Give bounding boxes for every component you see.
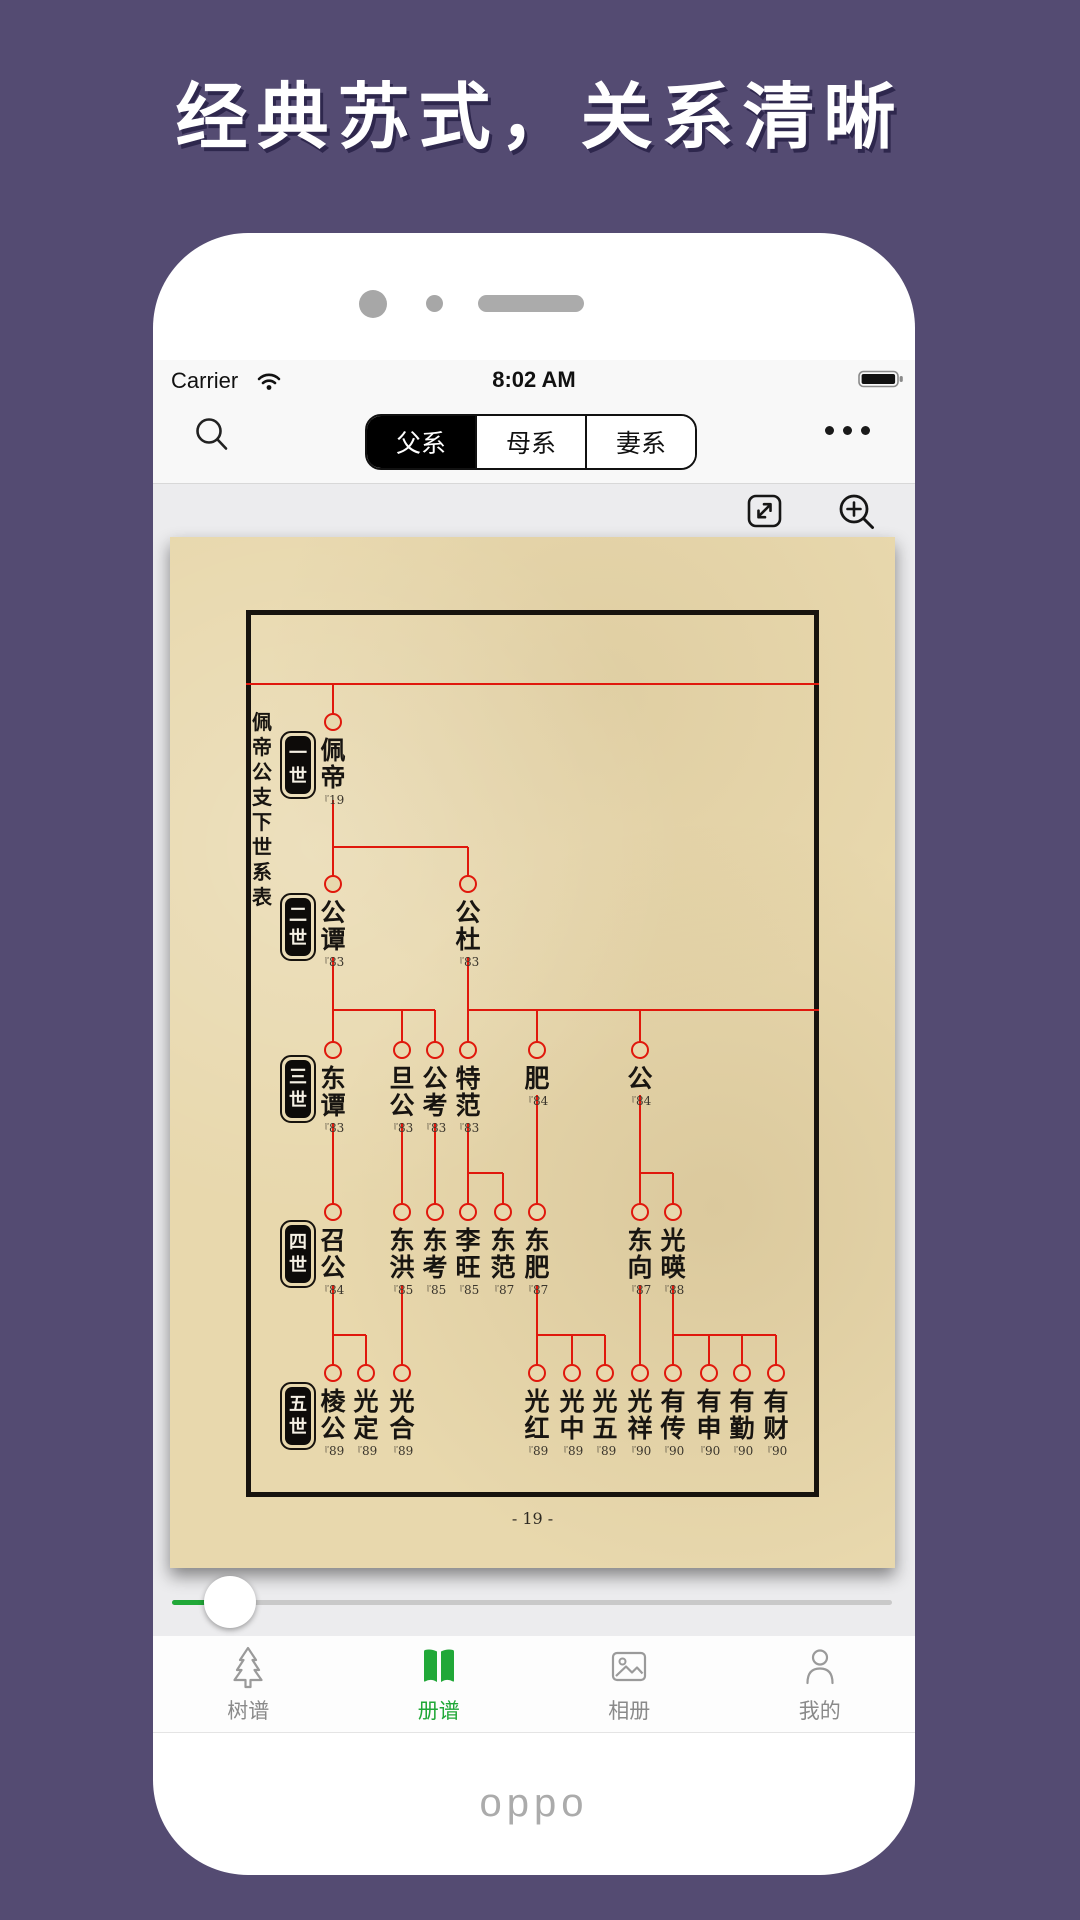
person-name: 肥: [523, 1065, 551, 1092]
segment-父系[interactable]: 父系: [367, 416, 475, 468]
tab-相册[interactable]: 相册: [534, 1636, 725, 1732]
page-ref: 『83: [389, 1121, 413, 1135]
battery-icon: [858, 369, 904, 389]
person-node-circle: [631, 1364, 649, 1382]
person-node-circle: [733, 1364, 751, 1382]
person-node-circle: [393, 1203, 411, 1221]
person-name: 公: [626, 1065, 654, 1092]
sensor-dot: [426, 295, 443, 312]
person-name: 东洪: [388, 1227, 416, 1281]
person-node-circle: [664, 1364, 682, 1382]
tree-connector-v: [467, 1123, 469, 1212]
page-ref: 『85: [389, 1283, 413, 1297]
page-ref: 『89: [389, 1444, 413, 1458]
page-ref: 『19: [320, 793, 344, 807]
genealogy-page[interactable]: 佩帝『19公谭『83公杜『83东谭『83旦公『83公考『83特范『83肥『84公…: [170, 537, 895, 1568]
hero-title: 经典苏式，关系清晰: [0, 58, 1080, 163]
person-node-circle: [324, 1041, 342, 1059]
page-ref: 『89: [320, 1444, 344, 1458]
person-node-circle: [631, 1041, 649, 1059]
page-ref: 『89: [592, 1444, 616, 1458]
page-ref: 『89: [353, 1444, 377, 1458]
person-name: 有申: [695, 1388, 723, 1442]
person-name: 光定: [352, 1388, 380, 1442]
person-name: 佩帝: [319, 737, 347, 791]
search-icon[interactable]: [193, 416, 231, 454]
tree-connector-v: [332, 1123, 334, 1212]
person-node-circle: [459, 875, 477, 893]
tree-connector-v: [467, 957, 469, 1050]
tree-connector-v: [332, 1285, 334, 1373]
person-name: 东谭: [319, 1065, 347, 1119]
tab-树谱[interactable]: 树谱: [153, 1636, 344, 1732]
tab-我的[interactable]: 我的: [725, 1636, 916, 1732]
album-icon: [606, 1643, 652, 1691]
tab-bar: 树谱册谱相册我的: [153, 1636, 915, 1733]
speaker-bar: [478, 295, 584, 312]
tree-connector-h: [468, 1172, 503, 1174]
person-name: 光红: [523, 1388, 551, 1442]
page-ref: 『83: [455, 955, 479, 969]
person-name: 旦公: [388, 1065, 416, 1119]
page-slider-track[interactable]: [172, 1600, 892, 1605]
person-name: 公谭: [319, 899, 347, 953]
person-node-circle: [324, 1203, 342, 1221]
person-name: 光祥: [626, 1388, 654, 1442]
page-viewer: 佩帝『19公谭『83公杜『83东谭『83旦公『83公考『83特范『83肥『84公…: [153, 484, 915, 1636]
person-node-circle: [631, 1203, 649, 1221]
tree-connector-v: [434, 1123, 436, 1212]
person-node-circle: [324, 713, 342, 731]
person-node-circle: [664, 1203, 682, 1221]
page-ref: 『87: [627, 1283, 651, 1297]
person-name: 公考: [421, 1065, 449, 1119]
person-name: 光暎: [659, 1227, 687, 1281]
generation-badge: 一世: [280, 731, 316, 799]
generation-badge: 五世: [280, 1382, 316, 1450]
user-icon: [797, 1643, 843, 1691]
brand-logo: oppo: [153, 1781, 915, 1826]
page-ref: 『85: [455, 1283, 479, 1297]
page-ref: 『89: [559, 1444, 583, 1458]
segment-妻系[interactable]: 妻系: [585, 416, 695, 468]
page-ref: 『83: [320, 1121, 344, 1135]
person-node-circle: [393, 1041, 411, 1059]
person-node-circle: [324, 875, 342, 893]
page-ref: 『85: [422, 1283, 446, 1297]
tree-connector-h: [333, 1009, 435, 1011]
person-node-circle: [494, 1203, 512, 1221]
page-ref: 『84: [627, 1094, 651, 1108]
tree-side-title: 佩帝公支下世系表: [252, 710, 272, 910]
page-ref: 『83: [320, 955, 344, 969]
person-node-circle: [393, 1364, 411, 1382]
person-node-circle: [459, 1203, 477, 1221]
family-tree: 佩帝『19公谭『83公杜『83东谭『83旦公『83公考『83特范『83肥『84公…: [170, 537, 895, 1568]
person-node-circle: [700, 1364, 718, 1382]
tree-connector-v: [536, 1285, 538, 1373]
tree-connector-h: [468, 1009, 819, 1011]
camera-dot: [359, 290, 387, 318]
person-node-circle: [528, 1364, 546, 1382]
nav-bar: 父系母系妻系: [153, 400, 915, 484]
person-name: 东肥: [523, 1227, 551, 1281]
more-icon[interactable]: [825, 426, 881, 435]
tree-connector-v: [332, 800, 334, 884]
person-name: 公杜: [454, 899, 482, 953]
page-ref: 『83: [455, 1121, 479, 1135]
person-node-circle: [563, 1364, 581, 1382]
tree-connector-h: [673, 1334, 776, 1336]
page-ref: 『90: [763, 1444, 787, 1458]
page-ref: 『89: [524, 1444, 548, 1458]
person-name: 有财: [762, 1388, 790, 1442]
person-name: 有传: [659, 1388, 687, 1442]
person-node-circle: [324, 1364, 342, 1382]
zoom-in-icon[interactable]: [836, 492, 880, 532]
person-name: 召公: [319, 1227, 347, 1281]
person-node-circle: [426, 1041, 444, 1059]
person-name: 光中: [558, 1388, 586, 1442]
page-ref: 『87: [524, 1283, 548, 1297]
person-node-circle: [528, 1041, 546, 1059]
book-icon: [416, 1643, 462, 1691]
page-ref: 『90: [660, 1444, 684, 1458]
person-node-circle: [528, 1203, 546, 1221]
person-name: 东向: [626, 1227, 654, 1281]
phone-mockup: Carrier 8:02 AM 父系母系妻系: [153, 233, 915, 1875]
tree-connector-v: [639, 1285, 641, 1373]
tab-label: 册谱: [418, 1695, 460, 1725]
tree-connector-v: [401, 1123, 403, 1212]
tree-connector-v: [672, 1285, 674, 1373]
person-name: 东考: [421, 1227, 449, 1281]
generation-badge: 四世: [280, 1220, 316, 1288]
person-node-circle: [426, 1203, 444, 1221]
tab-label: 我的: [799, 1695, 841, 1725]
person-name: 棱公: [319, 1388, 347, 1442]
tree-connector-h: [333, 846, 468, 848]
segment-母系[interactable]: 母系: [475, 416, 585, 468]
page-ref: 『84: [524, 1094, 548, 1108]
page-ref: 『90: [696, 1444, 720, 1458]
page-ref: 『88: [660, 1283, 684, 1297]
tree-connector-v: [332, 957, 334, 1050]
expand-icon[interactable]: [745, 492, 785, 530]
person-name: 东范: [489, 1227, 517, 1281]
status-bar: Carrier 8:02 AM: [153, 360, 915, 400]
lineage-segmented-control: 父系母系妻系: [365, 414, 697, 470]
person-name: 特范: [454, 1065, 482, 1119]
generation-badge: 二世: [280, 893, 316, 961]
tab-label: 树谱: [227, 1695, 269, 1725]
page-ref: 『90: [729, 1444, 753, 1458]
tree-connector-h: [640, 1172, 673, 1174]
page-number: - 19 -: [246, 1509, 819, 1528]
tree-connector-v: [401, 1285, 403, 1373]
page-ref: 『83: [422, 1121, 446, 1135]
person-name: 光合: [388, 1388, 416, 1442]
clock: 8:02 AM: [153, 367, 915, 393]
tree-icon: [225, 1643, 271, 1691]
tree-connector-h: [333, 1334, 366, 1336]
person-node-circle: [357, 1364, 375, 1382]
person-node-circle: [596, 1364, 614, 1382]
person-node-circle: [767, 1364, 785, 1382]
page-ref: 『84: [320, 1283, 344, 1297]
tree-connector-v: [639, 1095, 641, 1212]
page-ref: 『87: [490, 1283, 514, 1297]
person-name: 有勤: [728, 1388, 756, 1442]
tab-册谱[interactable]: 册谱: [344, 1636, 535, 1732]
tree-connector-v: [536, 1095, 538, 1212]
person-node-circle: [459, 1041, 477, 1059]
person-name: 光五: [591, 1388, 619, 1442]
generation-badge: 三世: [280, 1055, 316, 1123]
page-ref: 『90: [627, 1444, 651, 1458]
tab-label: 相册: [608, 1695, 650, 1725]
page-slider-thumb[interactable]: [204, 1576, 256, 1628]
person-name: 李旺: [454, 1227, 482, 1281]
